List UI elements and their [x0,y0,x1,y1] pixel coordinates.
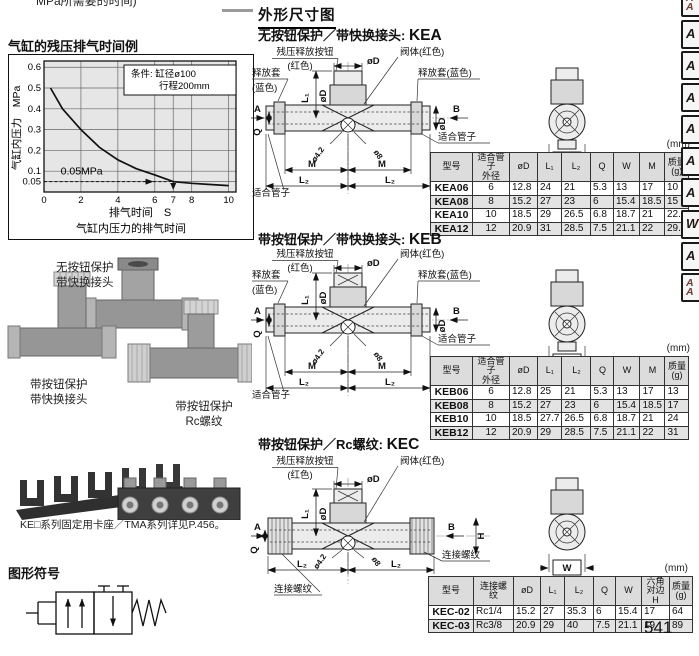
section-title-text: 无按钮保护／带快换接头: [258,28,409,43]
value-cell: 23 [562,399,591,413]
column-header: 质量 (g) [670,577,693,606]
value-cell: 6 [591,195,614,209]
dim-l1: L₁ [300,93,311,103]
photo-label-line: 无按钮保护 [56,261,114,276]
column-header: 连接螺纹 [474,577,514,606]
y-tick-label: 0.1 [28,166,41,177]
value-cell: 5.3 [591,182,614,196]
value-cell: 20.9 [514,619,541,633]
dim-l1: L₁ [300,509,311,519]
column-header: L₂ [562,357,591,386]
section-model: KEC [387,436,420,453]
model-cell: KEA10 [431,209,473,223]
value-cell: 15.2 [510,195,538,209]
value-cell: 27 [538,195,562,209]
table-row: KEA121220.93128.57.521.12229.5 [431,222,689,236]
column-header: L₁ [538,357,562,386]
x-tick-label: 2 [78,195,83,206]
label-release-button: 残压释放按钮 [276,46,334,58]
label-release-sleeve-left: 释放套 [252,269,281,281]
value-cell: 15.4 [616,606,642,620]
dimension-table: 型号适合管子 外径øDL₁L₂QWM质量 (g)KEA06612.824215.… [430,152,689,236]
y-tick-label: 0.3 [28,125,41,136]
column-header: L₁ [541,577,565,606]
value-cell: 27.7 [538,413,562,427]
section-title-text: 带按钮保护／Rc螺纹: [258,437,387,452]
top-cut-text: MPa所需要的时间) [36,0,137,9]
column-header: 型号 [431,153,473,182]
label-release-sleeve-left-color: (蓝色) [252,82,277,94]
value-cell: 15.4 [614,399,640,413]
column-header: M [640,153,665,182]
value-cell: 89 [670,619,693,633]
hole-dia-small: ø4.2 [310,145,327,164]
column-header: øD [510,153,538,182]
model-cell: KEC-02 [429,606,474,620]
y-tick-label: 0.2 [28,145,41,156]
value-cell: 7.5 [591,222,614,236]
index-tab: A [681,242,699,271]
value-cell: 10 [473,413,510,427]
photo-label-line: 带快换接头 [30,393,88,408]
value-cell: 6.8 [591,413,614,427]
photo-label-line: 带快换接头 [56,276,114,291]
x-tick-label: 7 [171,195,176,206]
value-cell: 17 [665,399,689,413]
value-cell: 28.5 [562,426,591,440]
index-tab-letter: A [686,155,699,167]
table-row: KEB06612.825215.3131713 [431,386,689,400]
section-title-text: 带按钮保护／带快换接头: [258,232,409,247]
condition-line: 条件: 缸径ø100 [131,68,196,80]
symbol-heading: 图形符号 [8,563,60,582]
dim-d-top: øD [367,474,380,485]
chart-caption: 气缸内压力的排气时间 [76,221,186,235]
value-cell: 18.5 [510,413,538,427]
photo-label-line: 带按钮保护 [30,378,88,393]
label-tube-left: 适合管子 [252,187,291,199]
dim-q: Q [252,330,263,337]
index-tab: A [681,178,699,207]
dim-b: B [453,306,460,317]
index-tab: W [681,210,699,239]
dim-d-stack: øD [318,90,329,103]
x-tick-label: 8 [189,195,194,206]
column-header: øD [514,577,541,606]
y-tick-label: 0.05 [23,177,42,188]
photo-label-kea: 无按钮保护 带快换接头 [56,261,114,291]
value-cell: 15.4 [614,195,640,209]
column-header: M [640,357,665,386]
value-cell: Rc1/4 [474,606,514,620]
label-release-button: 残压释放按钮 [276,455,334,467]
value-cell: 18.7 [614,413,640,427]
column-header: 质量 (g) [665,357,689,386]
column-header: L₁ [538,153,562,182]
value-cell: 21 [562,182,591,196]
label-release-button-color: (红色) [287,262,312,274]
column-header: 适合管子 外径 [473,357,510,386]
index-tab-letter: A [686,123,699,135]
value-cell: 18.5 [640,195,665,209]
value-cell: 29 [538,426,562,440]
value-cell: 5.3 [591,386,614,400]
value-cell: 23 [562,195,591,209]
units-label: (mm) [430,563,688,574]
dim-m: M [378,361,386,372]
index-tab: A [681,20,699,49]
value-cell: 27 [538,399,562,413]
value-cell: 12 [473,426,510,440]
value-cell: 6 [473,182,510,196]
index-tab-letter: A [686,288,699,297]
units-label: (mm) [432,343,690,354]
value-cell: 12 [473,222,510,236]
x-tick-label: 10 [223,195,234,206]
value-cell: 17 [640,182,665,196]
value-cell: 10 [473,209,510,223]
dim-l2: L₂ [391,559,401,570]
dim-l2: L₂ [297,559,307,570]
value-cell: 29 [541,619,565,633]
index-tab-letter: A [686,60,699,72]
divider [222,9,253,12]
dim-d-top: øD [367,56,380,67]
y-tick-label: 0.6 [28,62,41,73]
dim-b: B [453,104,460,115]
chart-title: 气缸的残压排气时间例 [8,36,138,55]
column-header: 六角对边 H [642,577,670,606]
index-tab-letter: W [686,218,699,230]
value-cell: 28.5 [562,222,591,236]
photo-label-line: 带按钮保护 [166,400,242,415]
value-cell: 21.1 [616,619,642,633]
section-title-kec: 带按钮保护／Rc螺纹: KEC [258,434,419,454]
dim-d-right: øD [437,118,448,131]
valve-symbol [16,582,176,646]
value-cell: 18.7 [614,209,640,223]
dim-l2: L₂ [385,175,395,186]
label-release-sleeve-right: 释放套(蓝色) [418,269,472,281]
value-cell: 18.5 [640,399,665,413]
value-cell: 29 [538,209,562,223]
keb-table-wrap: 型号适合管子 外径øDL₁L₂QWM质量 (g)KEB06612.825215.… [430,356,689,440]
value-cell: 7.5 [594,619,616,633]
column-header: L₂ [562,153,591,182]
label-release-button-color: (红色) [287,469,312,481]
value-cell: 13 [665,386,689,400]
value-cell: 27 [541,606,565,620]
page-number: 541 [644,618,672,638]
value-cell: 21.1 [614,222,640,236]
column-header: L₂ [565,577,594,606]
index-tab: A [681,115,699,144]
value-cell: Rc3/8 [474,619,514,633]
value-cell: 31 [538,222,562,236]
kea-table-wrap: 型号适合管子 外径øDL₁L₂QWM质量 (g)KEA06612.824215.… [430,152,689,236]
dim-q: Q [252,128,263,135]
index-tab: AA [681,0,699,17]
value-cell: 31 [665,426,689,440]
x-tick-label: 6 [152,195,157,206]
x-tick-label: 0 [41,195,46,206]
dim-a: A [254,306,261,317]
table-row: KEB121220.92928.57.521.12231 [431,426,689,440]
value-cell: 26.5 [562,209,591,223]
model-cell: KEB08 [431,399,473,413]
value-cell: 6 [591,399,614,413]
value-cell: 6 [473,386,510,400]
dim-l1: L₁ [300,295,311,305]
column-header: Q [591,357,614,386]
photo-label-line: Rc螺纹 [166,415,242,430]
section-title-kea: 无按钮保护／带快换接头: KEA [258,25,442,45]
value-cell: 22 [640,426,665,440]
dim-a: A [254,522,261,533]
section-model: KEA [409,27,442,44]
model-cell: KEB06 [431,386,473,400]
dim-l2: L₂ [299,175,309,186]
dim-h: H [476,532,487,539]
index-tab-letter: A [686,92,699,104]
column-header: W [614,357,640,386]
label-release-sleeve-left: 释放套 [252,67,281,79]
model-cell: KEA06 [431,182,473,196]
value-cell: 13 [614,182,640,196]
index-tab-letter: A [686,187,699,199]
column-header: W [616,577,642,606]
product-photos [6,256,252,468]
column-header: 型号 [429,577,474,606]
table-row: KEB101018.527.726.56.818.72124 [431,413,689,427]
value-cell: 13 [614,386,640,400]
index-tab: AA [681,273,699,302]
photo-label-kec: 带按钮保护 Rc螺纹 [166,400,242,430]
x-axis-label: 排气时间 S [109,205,171,219]
label-valve-body: 阀体(红色) [400,46,444,58]
x-tick-label: 4 [115,195,120,206]
column-header: 适合管子 外径 [473,153,510,182]
label-release-sleeve-right: 释放套(蓝色) [418,67,472,79]
column-header: Q [591,153,614,182]
table-row: KEA101018.52926.56.818.72122.5 [431,209,689,223]
value-cell: 8 [473,195,510,209]
value-cell: 8 [473,399,510,413]
dim-l2: L₂ [385,377,395,388]
y-tick-label: 0.4 [28,104,41,115]
value-cell: 21.1 [614,426,640,440]
label-valve-body: 阀体(红色) [400,248,444,260]
y-axis-label: 气缸内压力 MPa [10,86,23,171]
value-cell: 21 [640,413,665,427]
column-header: øD [510,357,538,386]
value-cell: 24 [665,413,689,427]
value-cell: 64 [670,606,693,620]
table-row: KEA08815.22723615.418.515 [431,195,689,209]
value-cell: 12.8 [510,182,538,196]
condition-line: 行程200mm [159,80,210,92]
value-cell: 20.9 [510,426,538,440]
column-header: W [614,153,640,182]
value-cell: 12.8 [510,386,538,400]
y-tick-label: 0.5 [28,83,41,94]
label-thread-right: 连接螺纹 [442,549,481,561]
column-header: 型号 [431,357,473,386]
index-tab: A [681,147,699,176]
value-cell: 25 [538,386,562,400]
exhaust-time-chart: 0.050.10.20.30.40.50.6024678100.05MPa条件:… [10,56,252,236]
value-cell: 15.2 [510,399,538,413]
value-cell: 7.5 [591,426,614,440]
value-cell: 20.9 [510,222,538,236]
label-thread-left: 连接螺纹 [274,583,313,595]
model-cell: KEB12 [431,426,473,440]
model-cell: KEA08 [431,195,473,209]
exhaust-time-chart-panel: 0.050.10.20.30.40.50.6024678100.05MPa条件:… [8,54,254,240]
dim-d-stack: øD [318,508,329,521]
dim-d-right: øD [437,320,448,333]
value-cell: 40 [565,619,594,633]
table-row: KEA06612.824215.3131710 [431,182,689,196]
value-cell: 6.8 [591,209,614,223]
dim-d-top: øD [367,258,380,269]
fixing-clip-caption: KE□系列固定用卡座／TMA系列详见P.456。 [20,517,225,532]
hole-dia-big: ø8 [370,555,383,568]
value-cell: 35.3 [565,606,594,620]
value-cell: 18.5 [510,209,538,223]
value-cell: 26.5 [562,413,591,427]
units-label: (mm) [432,139,690,150]
value-cell: 6 [594,606,616,620]
photo-label-keb: 带按钮保护 带快换接头 [30,378,88,408]
hole-dia-small: ø4.2 [312,552,329,571]
dimension-table: 型号适合管子 外径øDL₁L₂QWM质量 (g)KEB06612.825215.… [430,356,689,440]
photo-clamp-manifold [14,458,246,520]
label-release-button-color: (红色) [287,60,312,72]
dim-b: B [448,522,455,533]
table-row: KEB08815.22723615.418.517 [431,399,689,413]
value-cell: 21 [562,386,591,400]
model-cell: KEB10 [431,413,473,427]
dim-q: Q [250,546,260,553]
label-tube-left: 适合管子 [252,389,291,401]
catalog-page: MPa所需要的时间) 气缸的残压排气时间例 0.050.10.20.30.40.… [0,0,699,656]
dim-d-stack: øD [318,292,329,305]
dim-l2: L₂ [299,377,309,388]
label-release-button: 残压释放按钮 [276,248,334,260]
dim-m: M [378,159,386,170]
label-valve-body: 阀体(红色) [400,455,444,467]
model-cell: KEC-03 [429,619,474,633]
index-tab: A [681,51,699,80]
dim-a: A [254,104,261,115]
index-tab: A [681,83,699,112]
value-cell: 15.2 [514,606,541,620]
index-tab-letter: A [686,3,699,12]
guide-annotation: 0.05MPa [61,166,103,178]
hole-dia-small: ø4.2 [310,347,327,366]
index-tab-letter: A [686,28,699,40]
value-cell: 24 [538,182,562,196]
label-release-sleeve-left-color: (蓝色) [252,284,277,296]
value-cell: 21 [640,209,665,223]
column-header: Q [594,577,616,606]
value-cell: 17 [640,386,665,400]
index-tab-letter: A [686,250,699,262]
value-cell: 22 [640,222,665,236]
